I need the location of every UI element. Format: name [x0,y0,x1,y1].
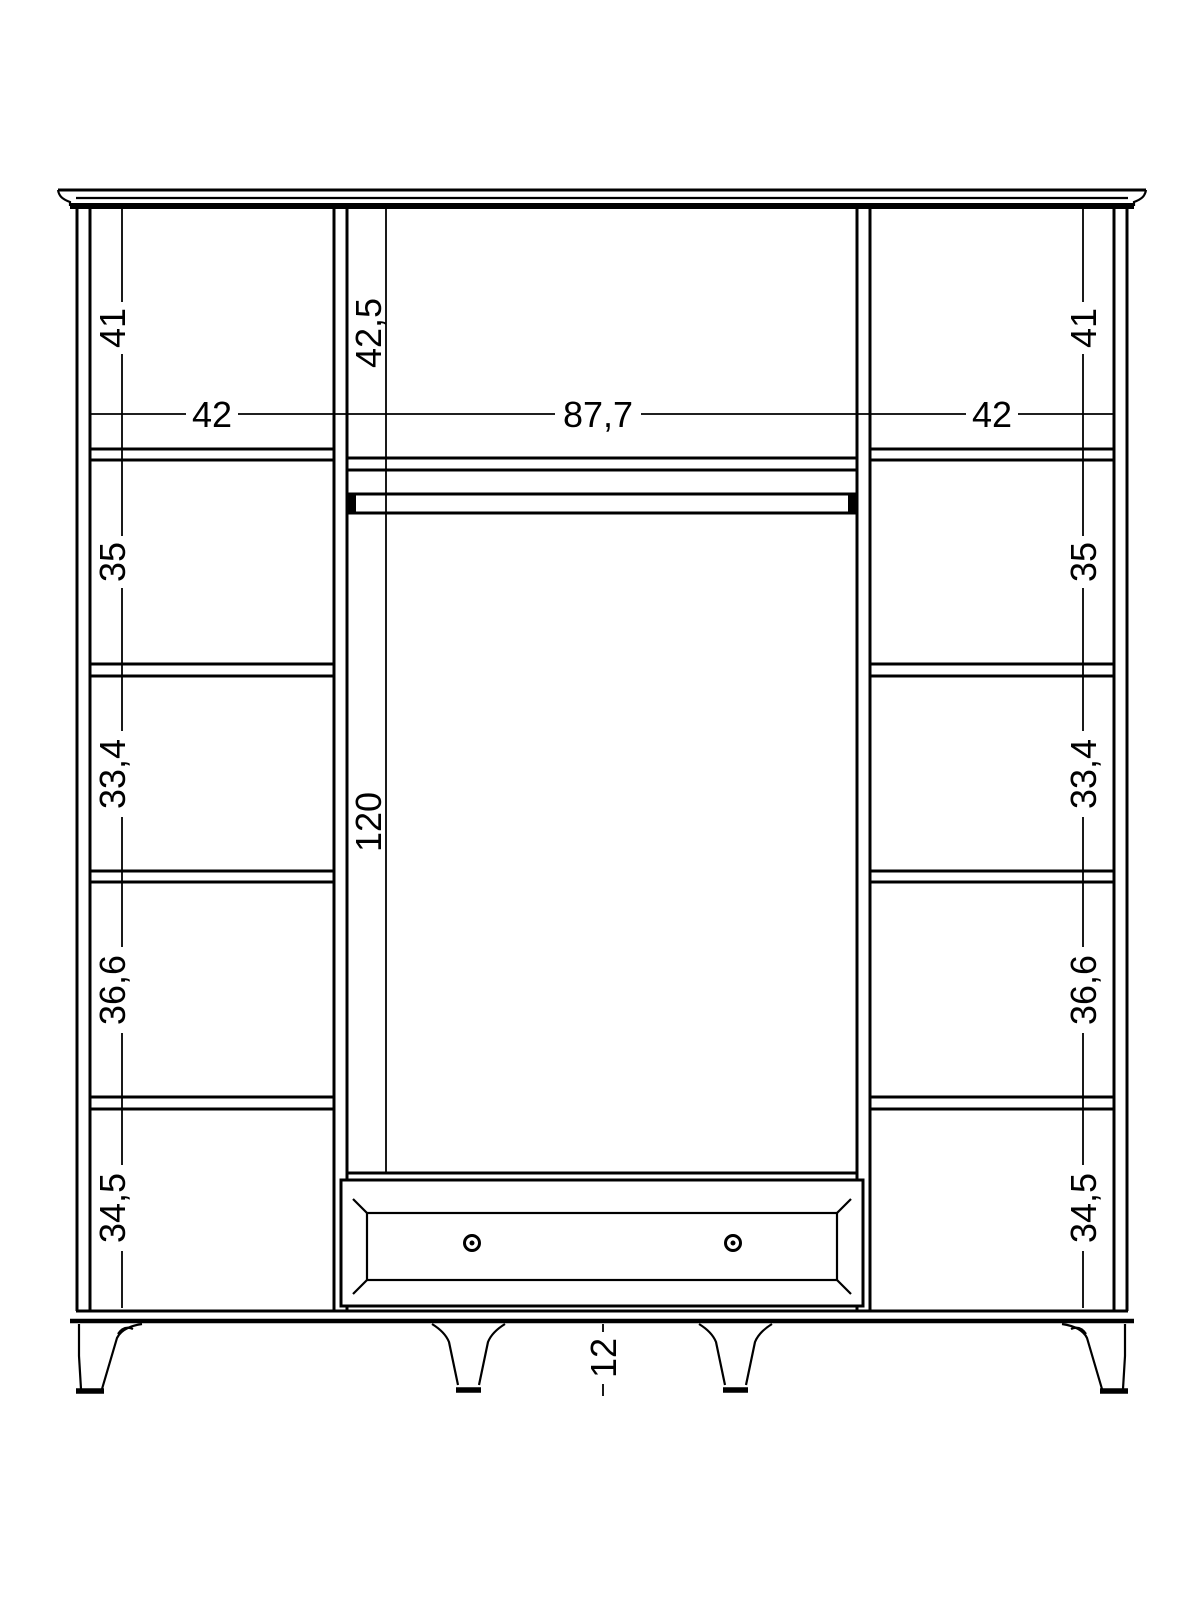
leg-inner-edge [102,1324,142,1389]
leg-left-edge [699,1324,725,1385]
leg-center-left [432,1324,505,1390]
center-compartment [347,458,857,1173]
dim-right-section-3: 33,4 [1063,739,1104,809]
hanging-rod-right-cap [848,494,857,513]
wardrobe-technical-drawing: 41 35 33,4 36,6 34,5 41 35 33,4 36,6 34,… [0,0,1200,1600]
cornice [58,190,1146,206]
dim-left-section-2: 35 [92,542,133,582]
leg-inner-edge [1062,1324,1102,1389]
leg-front-right [1062,1324,1128,1391]
dim-left-width: 42 [192,394,232,435]
dim-center-hanging-height: 120 [348,792,389,852]
cornice-left-molding [58,190,70,206]
leg-outer-edge [79,1324,81,1389]
dim-left-section-1: 41 [92,308,133,348]
drawer-knob-left-center [470,1241,475,1246]
dim-left-section-3: 33,4 [92,739,133,809]
dim-right-section-5: 34,5 [1063,1173,1104,1243]
drawer-knob-right-center [731,1241,736,1246]
drawing-canvas: 41 35 33,4 36,6 34,5 41 35 33,4 36,6 34,… [0,0,1200,1600]
leg-front-left [76,1324,142,1391]
dim-right-section-1: 41 [1063,308,1104,348]
dim-right-width: 42 [972,394,1012,435]
drawer-front [341,1180,863,1306]
hanging-rod [347,494,857,513]
leg-right-edge [479,1324,505,1385]
cornice-right-molding [1134,190,1146,206]
dim-left-section-4: 36,6 [92,955,133,1025]
leg-center-right [699,1324,772,1390]
dim-center-top-height: 42,5 [348,298,389,368]
drawer [341,1180,863,1306]
dim-right-section-2: 35 [1063,542,1104,582]
leg-left-edge [432,1324,458,1385]
dim-center-width: 87,7 [563,394,633,435]
dim-leg-height: 12 [583,1338,624,1378]
hanging-rod-left-cap [347,494,356,513]
leg-right-edge [746,1324,772,1385]
carcass-panels [77,206,1127,1311]
leg-outer-edge [1123,1324,1125,1389]
dim-right-section-4: 36,6 [1063,955,1104,1025]
dim-left-section-5: 34,5 [92,1173,133,1243]
bottom-board [70,1311,1134,1321]
